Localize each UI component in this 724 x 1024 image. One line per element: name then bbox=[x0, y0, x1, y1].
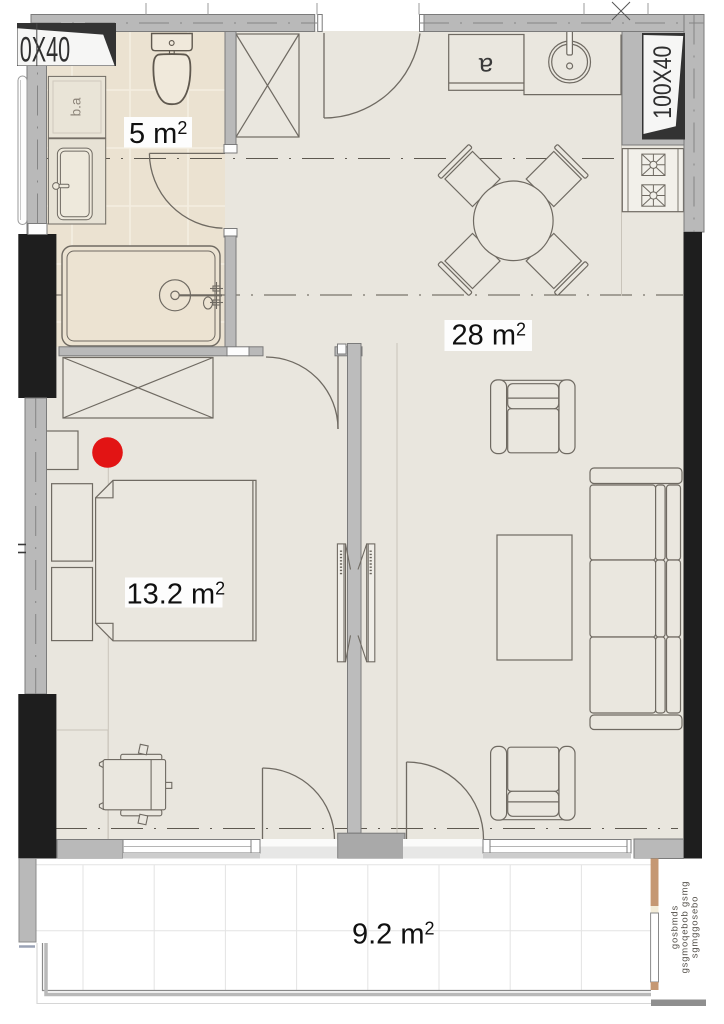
svg-text:sgmggosebo: sgmggosebo bbox=[690, 896, 701, 958]
svg-text:9.2 m2: 9.2 m2 bbox=[352, 919, 435, 951]
svg-text:100X40: 100X40 bbox=[649, 46, 677, 119]
svg-text:a: a bbox=[478, 52, 493, 82]
svg-text:b.a: b.a bbox=[69, 97, 84, 116]
svg-text:13.2 m2: 13.2 m2 bbox=[127, 579, 226, 611]
svg-text:0X40: 0X40 bbox=[20, 30, 70, 69]
svg-text:28 m2: 28 m2 bbox=[452, 320, 527, 352]
